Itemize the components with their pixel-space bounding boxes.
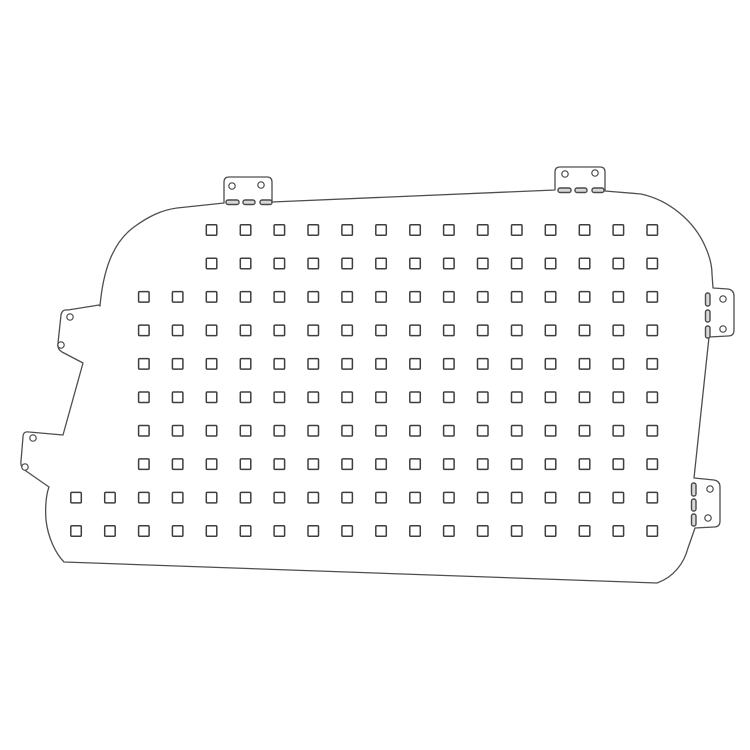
perforation-square [308,292,319,303]
perforation-square [647,258,658,269]
perforation-square [613,459,624,470]
perforation-square [512,459,523,470]
perforation-square [274,258,285,269]
perforation-square [512,359,523,370]
perforation-square [139,392,150,403]
perforation-square [613,258,624,269]
perforation-square [308,492,319,503]
perforation-square [342,492,353,503]
drawing-canvas [0,0,750,750]
perforation-square [172,359,183,370]
perforation-square [240,292,251,303]
perforation-square [579,426,590,437]
perforation-square [579,392,590,403]
perforation-square [545,258,556,269]
perforation-square [512,292,523,303]
mounting-slot [558,188,571,193]
perforation-square [545,392,556,403]
perforation-square [206,325,217,336]
perforation-square [139,459,150,470]
perforation-square [444,426,455,437]
perforation-square [376,526,387,537]
perforation-square [545,325,556,336]
mounting-slot [575,188,587,193]
perforation-square [274,459,285,470]
perforation-square [444,359,455,370]
perforation-square [647,392,658,403]
perforation-square [206,258,217,269]
perforation-square [206,426,217,437]
perforation-square [342,392,353,403]
mounting-hole [562,171,568,177]
perforation-square [410,225,421,236]
perforation-square [71,492,82,503]
perforation-square [342,325,353,336]
perforation-square [410,325,421,336]
perforation-square [342,292,353,303]
perforation-square [647,225,658,236]
perforation-square [545,426,556,437]
perforation-square [172,292,183,303]
perforation-square [579,526,590,537]
perforation-square [478,459,489,470]
perforation-square [342,526,353,537]
mounting-slot [706,293,711,306]
perforation-square [342,258,353,269]
perforation-square [139,492,150,503]
perforation-square [512,225,523,236]
perforation-square [240,426,251,437]
perforation-square [376,258,387,269]
perforation-square [579,325,590,336]
perforation-square [478,526,489,537]
perforation-square [410,459,421,470]
perforation-square [647,526,658,537]
perforation-square [579,258,590,269]
mounting-hole [30,435,36,441]
perforation-square [613,526,624,537]
perforation-square [444,258,455,269]
perforation-square [240,492,251,503]
perforation-square [172,459,183,470]
perforation-square [647,325,658,336]
perforation-square [613,292,624,303]
perforation-square [308,459,319,470]
perforation-square [613,392,624,403]
mounting-slot [592,188,604,193]
perforation-square [206,292,217,303]
perforation-square [172,492,183,503]
mounting-slot [692,514,697,526]
perforation-square [478,325,489,336]
perforation-square [139,526,150,537]
perforation-square [240,392,251,403]
perforation-square [274,292,285,303]
perforation-square [444,526,455,537]
mounting-hole [720,296,726,302]
perforation-square [579,225,590,236]
perforation-square [206,392,217,403]
mounting-hole [258,182,264,188]
perforation-square [444,492,455,503]
perforation-square [647,292,658,303]
mounting-slot [692,499,697,511]
perforation-square [410,526,421,537]
perforation-square [613,492,624,503]
mounting-hole [705,515,711,521]
perforation-square [512,392,523,403]
perforation-square [647,492,658,503]
perforation-square [240,325,251,336]
perforation-square [206,492,217,503]
perforation-square [545,225,556,236]
perforation-square [376,392,387,403]
perforation-square [274,225,285,236]
perforation-square [342,359,353,370]
perforation-square [240,225,251,236]
perforation-square [172,325,183,336]
perforation-square [647,426,658,437]
perforation-square [274,325,285,336]
perforation-square [478,258,489,269]
perforation-square [342,459,353,470]
perforation-square [444,292,455,303]
perforation-square [478,426,489,437]
perforation-square [105,526,116,537]
perforation-square [139,359,150,370]
perforated-panel-diagram [0,0,750,750]
perforation-square [206,359,217,370]
perforation-square [376,359,387,370]
mounting-hole [67,314,73,320]
perforation-square [512,325,523,336]
perforation-square [376,225,387,236]
perforation-square [478,392,489,403]
perforation-square [308,325,319,336]
perforation-square [444,459,455,470]
perforation-square [139,426,150,437]
perforation-square [478,225,489,236]
perforation-square [579,292,590,303]
perforation-square [545,459,556,470]
mounting-slot [706,310,711,322]
perforation-square [308,258,319,269]
perforation-square [512,492,523,503]
mounting-slot [243,200,255,205]
perforation-square [478,492,489,503]
perforation-square [613,225,624,236]
perforation-square [410,359,421,370]
perforation-square [512,258,523,269]
perforation-square [308,225,319,236]
perforation-square [274,526,285,537]
perforation-square [172,392,183,403]
perforation-square [105,492,116,503]
perforation-square [206,526,217,537]
perforation-square [139,325,150,336]
perforation-square [512,426,523,437]
perforation-square [274,392,285,403]
perforation-square [240,359,251,370]
perforation-square [376,292,387,303]
mounting-hole [720,326,726,332]
perforation-square [647,459,658,470]
perforation-square [444,225,455,236]
perforation-square [376,492,387,503]
perforation-square [274,492,285,503]
mounting-slot [226,200,239,205]
perforation-square [376,426,387,437]
mounting-hole [707,486,713,492]
perforation-square [172,526,183,537]
perforation-square [647,359,658,370]
mounting-hole [58,342,64,348]
perforation-square [613,325,624,336]
perforation-square [444,325,455,336]
perforation-square [579,359,590,370]
perforation-square [206,459,217,470]
perforation-square [579,459,590,470]
perforation-square [274,359,285,370]
perforation-square [240,526,251,537]
perforation-square [613,426,624,437]
perforation-square [512,526,523,537]
perforation-square [478,292,489,303]
perforation-square [308,392,319,403]
perforation-square [545,492,556,503]
perforation-square [308,359,319,370]
perforation-square [206,225,217,236]
perforation-square [376,459,387,470]
perforation-square [172,426,183,437]
perforation-square [376,325,387,336]
perforation-square [545,526,556,537]
perforation-square [410,292,421,303]
perforation-square [545,292,556,303]
perforation-square [410,258,421,269]
perforation-square [71,526,82,537]
perforation-square [410,492,421,503]
perforation-square [410,392,421,403]
perforation-square [444,392,455,403]
perforation-square [342,225,353,236]
mounting-slot [692,483,697,496]
perforation-square [308,426,319,437]
perforation-square [342,426,353,437]
perforation-square [139,292,150,303]
perforation-square [579,492,590,503]
mounting-hole [592,170,598,176]
perforation-square [613,359,624,370]
mounting-hole [22,464,28,470]
perforation-square [274,426,285,437]
mounting-slot [706,326,711,338]
perforation-square [478,359,489,370]
perforation-square [308,526,319,537]
mounting-hole [229,183,235,189]
mounting-slot [260,200,272,205]
perforation-square [545,359,556,370]
perforation-square [410,426,421,437]
perforation-square [240,459,251,470]
perforation-square [240,258,251,269]
